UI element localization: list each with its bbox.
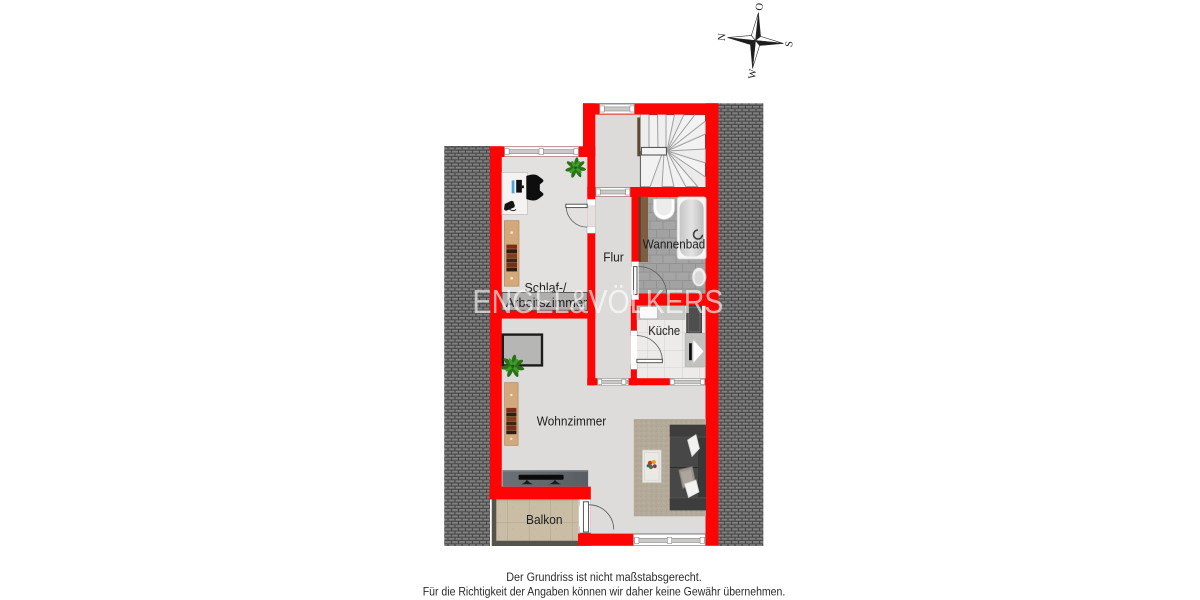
svg-text:Für die Richtigkeit der Angabe: Für die Richtigkeit der Angaben können w…	[423, 585, 786, 599]
svg-text:Küche: Küche	[648, 323, 680, 338]
svg-text:Flur: Flur	[603, 250, 624, 265]
svg-text:ENGEL&VÖLKERS: ENGEL&VÖLKERS	[473, 284, 724, 321]
svg-text:Wannenbad: Wannenbad	[643, 237, 706, 252]
svg-text:Der Grundriss ist nicht maßsta: Der Grundriss ist nicht maßstabsgerecht.	[506, 570, 702, 584]
svg-text:Balkon: Balkon	[526, 512, 563, 527]
svg-text:Wohnzimmer: Wohnzimmer	[537, 414, 607, 429]
svg-text:W: W	[747, 68, 759, 79]
